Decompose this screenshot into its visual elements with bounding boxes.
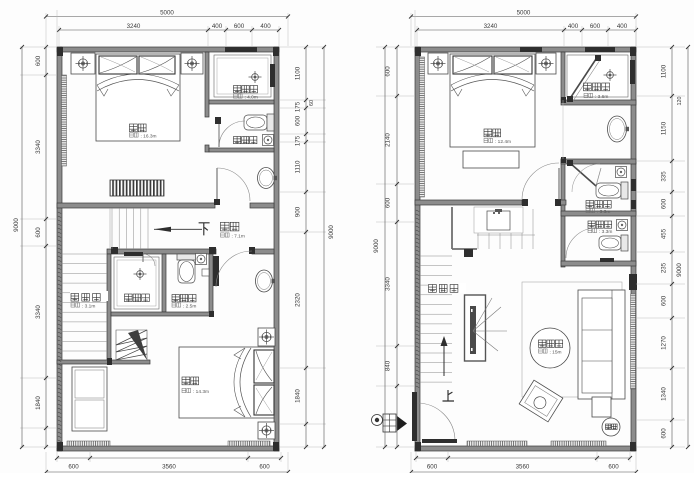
svg-text:600: 600 xyxy=(385,66,392,77)
svg-text:5000: 5000 xyxy=(517,9,531,16)
svg-text:600: 600 xyxy=(661,295,668,306)
svg-text:: 14.3m: : 14.3m xyxy=(193,389,209,395)
svg-text:1840: 1840 xyxy=(295,389,302,403)
svg-text:600: 600 xyxy=(35,55,42,66)
svg-text:1840: 1840 xyxy=(35,396,42,410)
svg-text:600: 600 xyxy=(590,23,601,30)
svg-text:: 2.5m: : 2.5m xyxy=(183,303,196,309)
svg-text:1100: 1100 xyxy=(295,66,302,80)
svg-text:600: 600 xyxy=(661,428,668,439)
svg-text:1100: 1100 xyxy=(661,64,668,78)
svg-text:9000: 9000 xyxy=(373,239,380,253)
svg-text:2140: 2140 xyxy=(385,133,392,147)
svg-text:600: 600 xyxy=(608,464,619,471)
svg-text:: 3.3m: : 3.3m xyxy=(599,229,612,235)
svg-text:3560: 3560 xyxy=(516,464,530,471)
svg-text:120: 120 xyxy=(677,97,683,106)
svg-text:600: 600 xyxy=(234,23,245,30)
svg-text:: 4.0m: : 4.0m xyxy=(245,94,258,100)
svg-text:335: 335 xyxy=(661,171,668,182)
svg-text:600: 600 xyxy=(35,227,42,238)
svg-text:: 3.6m: : 3.6m xyxy=(595,94,608,100)
svg-text:: 12.4m: : 12.4m xyxy=(495,139,511,145)
svg-text:1110: 1110 xyxy=(295,160,302,173)
svg-text:3340: 3340 xyxy=(35,305,42,319)
svg-text:3340: 3340 xyxy=(385,277,392,291)
svg-text:60: 60 xyxy=(309,100,315,106)
svg-text:: 16.3m: : 16.3m xyxy=(141,133,157,139)
svg-text:5000: 5000 xyxy=(160,9,174,16)
svg-text:600: 600 xyxy=(385,197,392,208)
svg-text:455: 455 xyxy=(661,228,668,239)
svg-text:600: 600 xyxy=(427,464,438,471)
svg-text:600: 600 xyxy=(68,464,79,471)
svg-text:1270: 1270 xyxy=(661,336,668,350)
svg-text:9000: 9000 xyxy=(328,225,335,239)
svg-text:235: 235 xyxy=(661,262,668,273)
svg-text:9000: 9000 xyxy=(13,218,20,232)
svg-text:3240: 3240 xyxy=(484,23,498,30)
svg-text:2320: 2320 xyxy=(295,293,302,307)
svg-text:400: 400 xyxy=(212,23,223,30)
svg-text:400: 400 xyxy=(568,23,579,30)
svg-text:3340: 3340 xyxy=(35,140,42,154)
svg-text:3560: 3560 xyxy=(162,464,176,471)
svg-text:: 15m: : 15m xyxy=(550,349,562,355)
svg-text:840: 840 xyxy=(385,360,392,371)
svg-text:: 3.1m: : 3.1m xyxy=(82,303,95,309)
svg-text:600: 600 xyxy=(295,115,302,126)
svg-text:1340: 1340 xyxy=(661,387,668,401)
svg-text:400: 400 xyxy=(260,23,271,30)
svg-text:175: 175 xyxy=(295,101,302,112)
svg-text:1150: 1150 xyxy=(661,121,668,135)
svg-text:600: 600 xyxy=(259,464,270,471)
svg-text:: 3.3m: : 3.3m xyxy=(597,209,610,215)
svg-text:600: 600 xyxy=(661,198,668,209)
svg-text:3240: 3240 xyxy=(127,23,141,30)
svg-text:175: 175 xyxy=(295,135,302,146)
svg-text:400: 400 xyxy=(617,23,628,30)
svg-text:900: 900 xyxy=(295,206,302,217)
svg-text:: 7.1m: : 7.1m xyxy=(232,233,245,239)
svg-text:9000: 9000 xyxy=(676,263,683,277)
